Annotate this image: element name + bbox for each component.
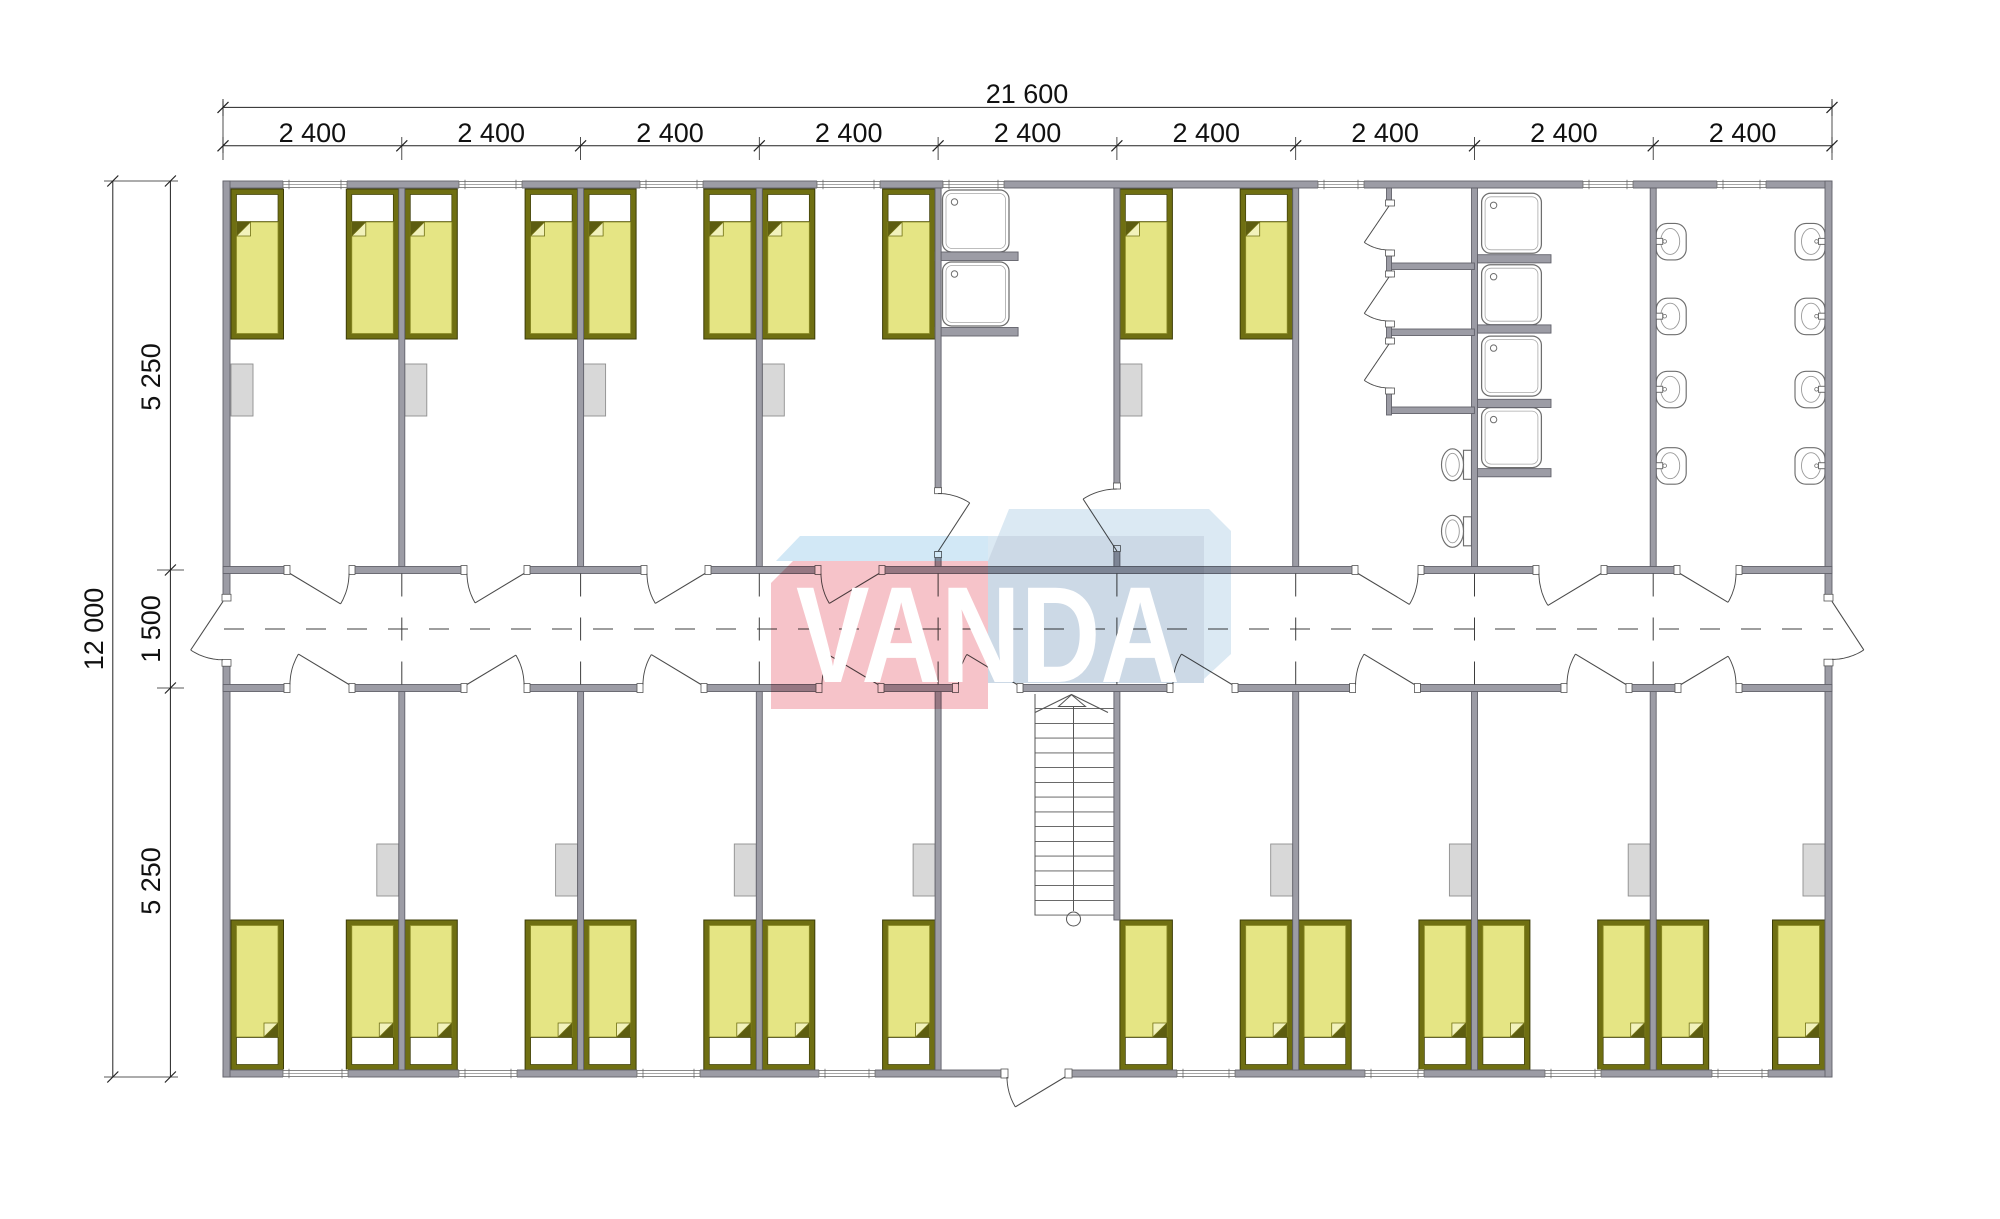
svg-text:2 400: 2 400	[1530, 118, 1598, 148]
svg-text:5 250: 5 250	[136, 847, 166, 915]
svg-text:2 400: 2 400	[636, 118, 704, 148]
svg-text:2 400: 2 400	[1351, 118, 1419, 148]
svg-text:VANDA: VANDA	[796, 559, 1180, 712]
svg-text:1 500: 1 500	[136, 595, 166, 663]
svg-text:2 400: 2 400	[815, 118, 883, 148]
svg-text:21 600: 21 600	[986, 79, 1069, 109]
svg-text:2 400: 2 400	[994, 118, 1062, 148]
svg-text:2 400: 2 400	[1173, 118, 1241, 148]
svg-text:2 400: 2 400	[1709, 118, 1777, 148]
svg-text:5 250: 5 250	[136, 343, 166, 411]
svg-text:2 400: 2 400	[279, 118, 347, 148]
svg-text:12 000: 12 000	[79, 588, 109, 671]
svg-text:2 400: 2 400	[457, 118, 525, 148]
